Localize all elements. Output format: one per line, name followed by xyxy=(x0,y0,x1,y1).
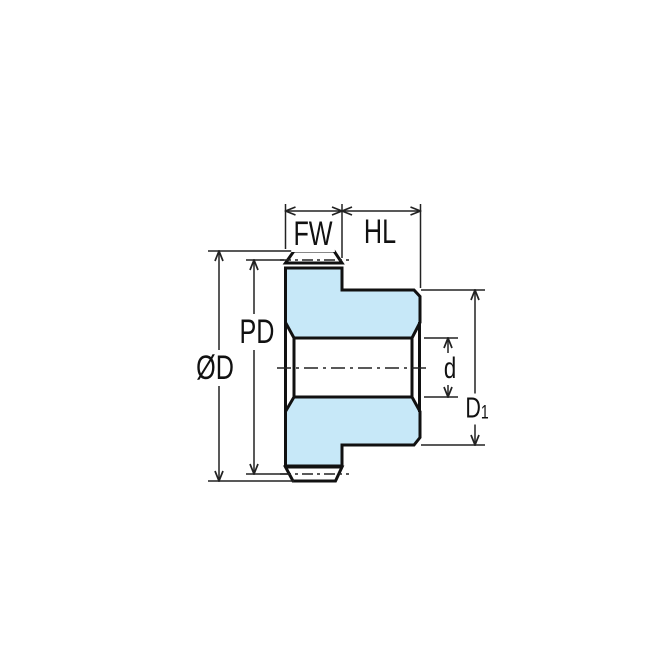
gear-body-upper xyxy=(286,268,421,338)
d1-label-subscript: 1 xyxy=(481,403,489,424)
gear-dimension-diagram: FW HL PD ØD d D1 xyxy=(0,0,670,670)
od-label: ØD xyxy=(194,350,236,386)
d1-label-main: D xyxy=(465,393,481,425)
d-label: d xyxy=(442,353,459,385)
gear-body xyxy=(286,268,421,466)
fw-label: FW xyxy=(291,216,335,252)
drawing-canvas xyxy=(0,0,670,670)
gear-body-lower xyxy=(286,397,421,466)
hl-label: HL xyxy=(362,214,399,250)
d1-label: D1 xyxy=(463,394,491,425)
pd-label: PD xyxy=(237,314,276,350)
